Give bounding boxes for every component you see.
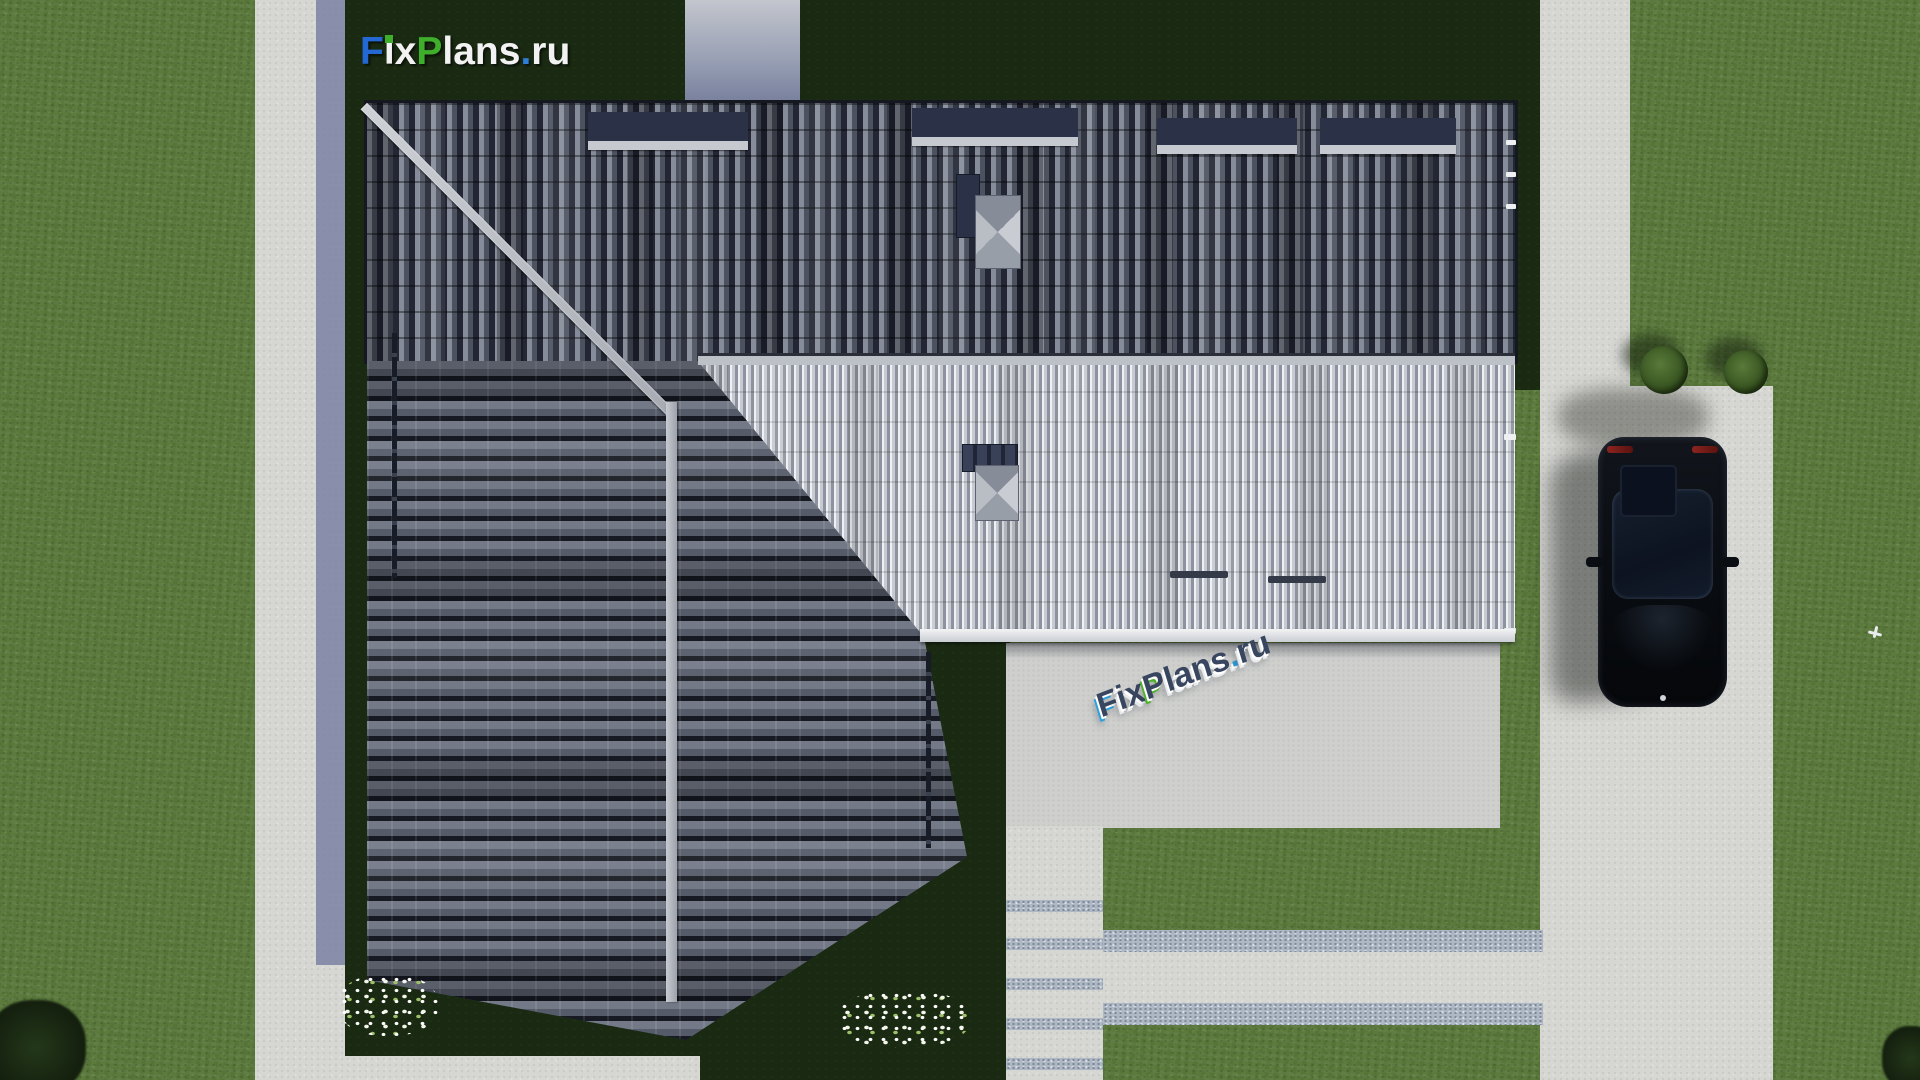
tree — [1724, 350, 1768, 394]
walkway-joint — [1006, 938, 1103, 950]
ridge-step — [1320, 118, 1456, 154]
fixplans-logo: FixPlans.ru — [360, 30, 570, 74]
side-mirror-left — [1586, 557, 1603, 567]
corner-bush-bottom-left — [0, 1000, 86, 1080]
roof-edge-mark — [1504, 434, 1516, 440]
cross-path-slab — [1103, 952, 1543, 1003]
roof-edge-mark — [1506, 140, 1516, 145]
logo-letter-x: x — [395, 30, 417, 73]
logo-dot: . — [520, 30, 531, 73]
tree — [1640, 346, 1688, 394]
bottom-edge-path — [345, 1056, 700, 1080]
roof-vent-dash — [1170, 571, 1228, 578]
ridge-step-bar — [1157, 145, 1297, 154]
ridge-step-bar — [588, 141, 748, 150]
cross-path — [1103, 930, 1543, 1025]
chimney-cap — [975, 465, 1019, 521]
roof-ladder — [392, 333, 397, 578]
ridge-step — [912, 108, 1078, 146]
garden-walkway — [1006, 826, 1103, 1080]
roof-vertical-ridge — [666, 402, 677, 1002]
walkway-joint — [1006, 978, 1103, 990]
walkway-joint — [1006, 1018, 1103, 1030]
left-path-shadow — [316, 0, 345, 965]
side-mirror-right — [1722, 557, 1739, 567]
driveway-entry-strip — [1540, 0, 1630, 390]
chimney-cap — [975, 195, 1021, 269]
walkway-joint — [1006, 1058, 1103, 1070]
taillight-right — [1692, 446, 1718, 453]
parked-car — [1550, 430, 1780, 720]
roof-edge-mark — [1506, 172, 1516, 177]
walkway-joint — [1006, 900, 1103, 912]
ridge-step — [1157, 118, 1297, 154]
top-utility-pad — [685, 0, 800, 105]
flower-bed-left — [338, 974, 438, 1036]
bird — [1868, 626, 1882, 640]
car-body — [1598, 437, 1727, 707]
ridge-step-bar — [1320, 145, 1456, 154]
patio — [1006, 643, 1500, 828]
roof-edge-mark — [1506, 204, 1516, 209]
roof-flashing — [698, 353, 1515, 365]
logo-letters-ru: ru — [531, 30, 570, 73]
cross-path-gravel-edge — [1103, 930, 1543, 952]
ridge-step — [588, 112, 748, 150]
logo-letters-lans: lans — [442, 30, 520, 73]
car-hood-highlight — [1608, 605, 1717, 675]
cross-path-gravel-edge — [1103, 1003, 1543, 1025]
aerial-render: FixPlans.ru FixPlans.ru — [0, 0, 1920, 1080]
roof-ladder — [926, 652, 931, 848]
ridge-step-bar — [912, 137, 1078, 146]
car-front-emblem — [1660, 695, 1666, 701]
roof-vent-dash — [1268, 576, 1326, 583]
taillight-left — [1607, 446, 1633, 453]
car-sunroof — [1622, 467, 1675, 515]
logo-letter-i: i — [384, 30, 395, 73]
flower-bed-right — [838, 990, 970, 1048]
logo-letter-p: P — [416, 30, 442, 73]
logo-letter-f: F — [360, 30, 384, 73]
